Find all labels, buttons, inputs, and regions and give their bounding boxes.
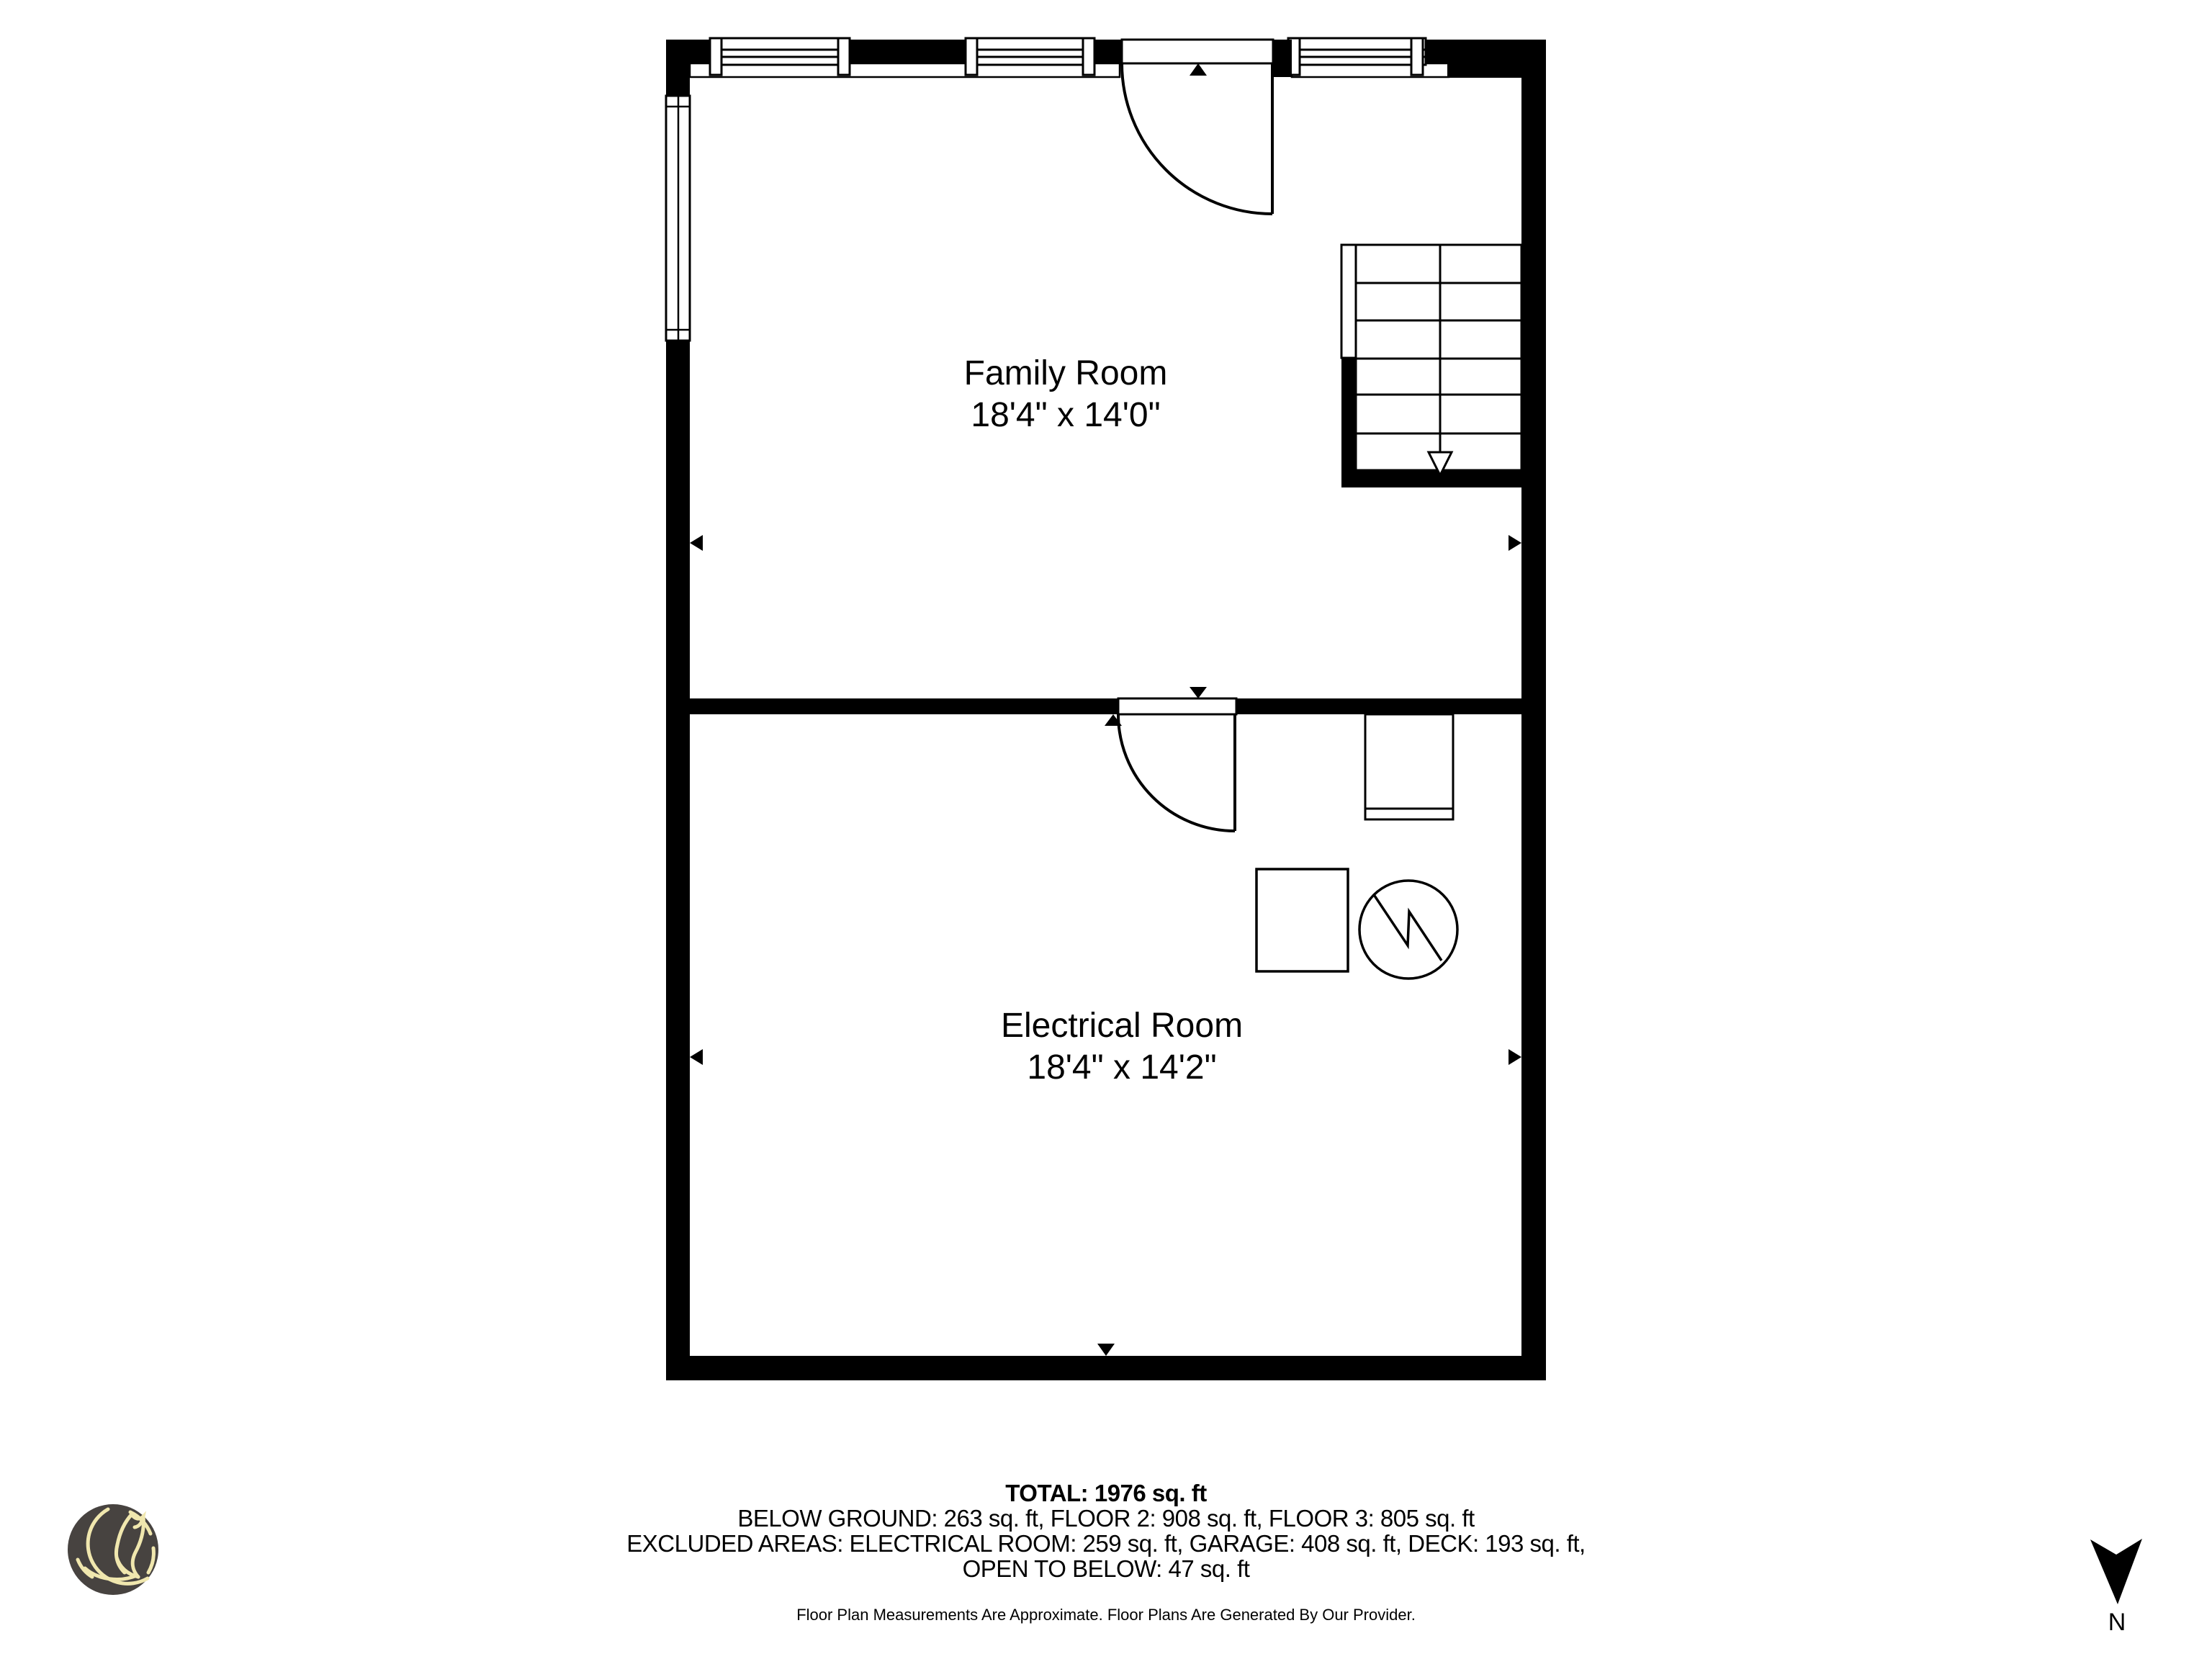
stairwell-bottom-wall (1341, 470, 1521, 487)
floor-areas: BELOW GROUND: 263 sq. ft, FLOOR 2: 908 s… (0, 1506, 2212, 1531)
excluded-areas-continued: OPEN TO BELOW: 47 sq. ft (0, 1556, 2212, 1581)
stair-railing (1341, 245, 1356, 358)
floor-plan-drawing (0, 0, 2212, 1659)
marker-family-left (690, 535, 703, 551)
entry-door-swing-arc (1122, 63, 1272, 214)
entry-door-jamb-block (1273, 40, 1292, 77)
total-area: TOTAL: 1976 sq. ft (0, 1480, 2212, 1506)
stairwell-left-wall (1341, 358, 1356, 487)
room-dimensions: 18'4" x 14'0" (850, 395, 1282, 436)
room-name: Electrical Room (906, 1005, 1338, 1047)
room-label-electrical: Electrical Room 18'4" x 14'2" (906, 1005, 1338, 1089)
disclaimer: Floor Plan Measurements Are Approximate.… (0, 1606, 2212, 1624)
walls (666, 40, 1546, 1380)
middle-wall-right-segment (1236, 698, 1521, 714)
right-wall (1521, 63, 1546, 1380)
electrical-equipment (1256, 714, 1457, 979)
marker-bottom-wall (1097, 1344, 1115, 1356)
middle-wall-left-segment (690, 698, 1118, 714)
entry-door (1122, 40, 1292, 214)
interior-door (1105, 687, 1236, 831)
electrical-panel (1365, 714, 1453, 819)
entry-door-direction-marker (1190, 63, 1207, 76)
staircase (1341, 245, 1521, 487)
floor-plan-page: Family Room 18'4" x 14'0" Electrical Roo… (0, 0, 2212, 1659)
room-dimensions: 18'4" x 14'2" (906, 1047, 1338, 1089)
north-label: N (2093, 1609, 2141, 1637)
corner-wall-block (1447, 62, 1521, 78)
room-name: Family Room (850, 353, 1282, 395)
area-summary: TOTAL: 1976 sq. ft BELOW GROUND: 263 sq.… (0, 1480, 2212, 1581)
equipment-box (1256, 869, 1348, 971)
marker-electrical-right (1509, 1049, 1521, 1065)
water-heater-icon (1359, 881, 1457, 979)
bottom-wall (666, 1356, 1546, 1380)
interior-door-opening (1118, 698, 1236, 714)
marker-family-right (1509, 535, 1521, 551)
entry-door-opening (1122, 40, 1273, 63)
marker-electrical-left (690, 1049, 703, 1065)
excluded-areas: EXCLUDED AREAS: ELECTRICAL ROOM: 259 sq.… (0, 1531, 2212, 1556)
interior-door-marker-top (1190, 687, 1207, 698)
room-label-family: Family Room 18'4" x 14'0" (850, 353, 1282, 436)
interior-door-swing-arc (1118, 714, 1235, 831)
window-left-wall (666, 96, 690, 341)
